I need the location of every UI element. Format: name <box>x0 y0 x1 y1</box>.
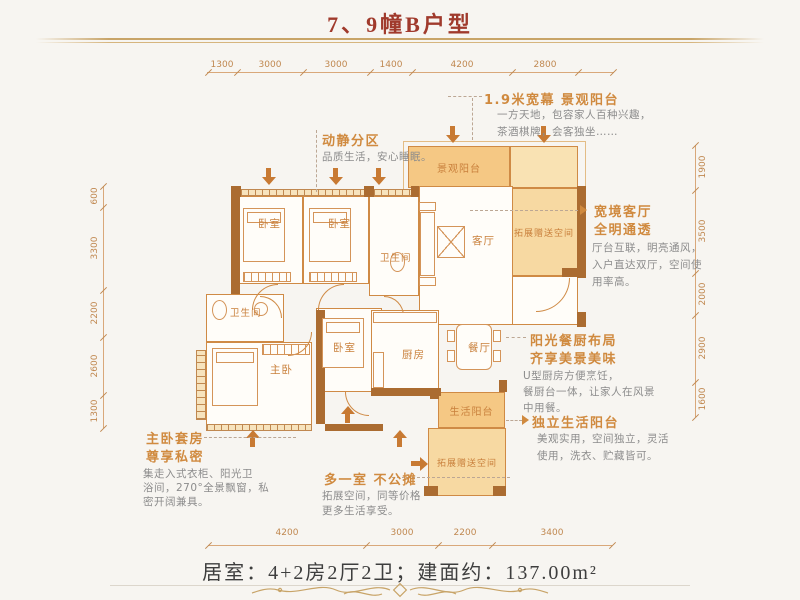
room-label-bath-a: 卫生间 <box>380 250 412 264</box>
room-label-bonus-bottom: 拓展赠送空间 <box>437 456 497 469</box>
dim-top-5: 4200 <box>442 60 482 70</box>
annotation-body: U型厨房方便烹饪， <box>523 368 619 383</box>
room-label-bedroom-a: 卧室 <box>258 216 281 231</box>
wall-corner-tl <box>231 186 241 197</box>
dim-top-1: 1300 <box>202 60 242 70</box>
wall-right <box>577 186 586 278</box>
annotation-body: 拓展空间，同等价格 <box>322 488 421 503</box>
annotation-title: 1.9米宽幕 景观阳台 <box>484 89 619 108</box>
door-arc-bedroom-b <box>318 284 344 310</box>
sofa-arm-icon <box>419 277 436 286</box>
dim-left-3: 2200 <box>90 298 100 328</box>
annotation-title: 主卧套房 <box>146 428 204 447</box>
dim-left-4: 2600 <box>90 351 100 381</box>
annotation-title: 独立生活阳台 <box>532 412 619 431</box>
chair-icon <box>493 330 501 342</box>
annotation-body: 密开阔兼具。 <box>143 494 209 509</box>
dim-right-5: 1600 <box>698 384 708 414</box>
annotation-body: 入户直达双厅，空间使 <box>592 257 702 272</box>
room-label-bedroom-c: 卧室 <box>333 340 356 355</box>
wall-bonus-bl <box>424 486 438 496</box>
room-label-view-balcony: 景观阳台 <box>437 160 481 175</box>
room-life-balcony: 生活阳台 <box>438 392 505 428</box>
room-bonus-right: 拓展赠送空间 <box>510 188 578 276</box>
dim-right-1: 1900 <box>698 152 708 182</box>
annotation-title: 动静分区 <box>322 130 380 149</box>
annotation-body: 更多生活享受。 <box>322 503 399 518</box>
bay-window-master <box>196 350 206 420</box>
room-label-bonus-right: 拓展赠送空间 <box>514 226 574 239</box>
dim-bottom-3: 2200 <box>445 528 485 538</box>
wall-corner-t3 <box>411 186 419 197</box>
dim-right-3: 2000 <box>698 279 708 309</box>
gold-rule-thin <box>36 42 764 43</box>
gold-flourish-ornament <box>250 581 550 600</box>
wall-balcony-l <box>430 390 439 399</box>
dim-top-6: 2800 <box>525 60 565 70</box>
wardrobe-icon <box>309 272 357 282</box>
wall-balcony-r <box>499 380 507 392</box>
coffee-table-icon <box>437 226 465 258</box>
kitchen-counter-icon <box>373 312 437 323</box>
room-bonus-top <box>510 146 578 188</box>
sofa-icon <box>420 212 435 276</box>
vent-arrow-icon <box>345 414 350 423</box>
annotation-body: 品质生活，安心睡眠。 <box>322 149 432 164</box>
dim-bottom-4: 3400 <box>532 528 572 538</box>
annotation-body: 厅台互联，明亮通风， <box>592 240 702 255</box>
room-label-master: 主卧 <box>270 362 293 377</box>
wall-left-upper <box>231 190 240 294</box>
chair-icon <box>493 350 501 362</box>
room-label-bath-b: 卫生间 <box>230 305 262 319</box>
room-label-kitchen: 厨房 <box>402 347 425 362</box>
annotation-title: 阳光餐厨布局 <box>530 330 617 349</box>
vent-arrow-icon <box>450 126 455 135</box>
annotation-body: 集走入式衣柜、阳光卫 <box>143 466 253 481</box>
closet-icon <box>262 344 310 355</box>
annotation-body: 使用，洗衣、贮藏皆可。 <box>537 448 658 463</box>
wall-corner-t2 <box>364 186 374 197</box>
chair-icon <box>447 330 455 342</box>
annotation-body: 用率高。 <box>592 274 636 289</box>
dim-top-4: 1400 <box>371 60 411 70</box>
annotation-body: 餐厨台一体，让家人在风景 <box>523 384 655 399</box>
dim-left-1: 600 <box>90 181 100 211</box>
vent-arrow-icon <box>397 438 402 447</box>
annotation-title: 宽境客厅 <box>594 201 652 220</box>
annotation-title: 齐享美景美味 <box>530 348 617 367</box>
vent-arrow-icon <box>250 438 255 447</box>
annotation-body: 浴间，270°全景飘窗，私 <box>143 480 269 495</box>
wall-bedroomc-bottom <box>325 424 383 431</box>
window-band-top <box>240 189 416 196</box>
bonus-arrow-icon <box>411 461 420 466</box>
sofa-arm-icon <box>419 202 436 211</box>
room-label-life-balcony: 生活阳台 <box>450 403 494 418</box>
dim-left-2: 3300 <box>90 233 100 263</box>
room-label-dining: 餐厅 <box>468 340 491 355</box>
dim-right-4: 2900 <box>698 333 708 363</box>
vent-arrow-icon <box>376 168 381 177</box>
dim-left-5: 1300 <box>90 396 100 426</box>
wall-bonus-br <box>493 486 506 496</box>
dim-top-2: 3000 <box>250 60 290 70</box>
dim-top-3: 3000 <box>316 60 356 70</box>
leader-arrow-icon <box>580 205 587 215</box>
annotation-title: 多一室 不公摊 <box>324 469 417 488</box>
vent-arrow-icon <box>333 168 338 177</box>
leader-arrow-icon <box>522 415 529 425</box>
gold-rule-thick <box>36 38 764 40</box>
annotation-title: 尊享私密 <box>146 446 204 465</box>
annotation-body: 一方天地，包容家人百种兴趣， <box>497 107 651 122</box>
wall-right-lower <box>577 312 586 327</box>
floorplan-flyer: 7、9幢B户型 1300 3000 3000 1400 4200 2800 42… <box>0 0 800 600</box>
wall-right-mid <box>562 268 586 277</box>
annotation-body: 茶酒棋牌，会客独坐…… <box>497 124 618 139</box>
vent-arrow-icon <box>266 168 271 177</box>
wardrobe-icon <box>243 272 291 282</box>
dim-bottom-1: 4200 <box>267 528 307 538</box>
chair-icon <box>447 350 455 362</box>
room-label-bedroom-b: 卧室 <box>328 216 351 231</box>
annotation-body: 美观实用，空间独立，灵活 <box>537 431 669 446</box>
room-label-living: 客厅 <box>472 233 495 248</box>
room-bath-a <box>369 196 419 296</box>
dim-bottom-2: 3000 <box>382 528 422 538</box>
annotation-title: 全明通透 <box>594 219 652 238</box>
bed-icon <box>212 348 258 406</box>
page-title: 7、9幢B户型 <box>0 7 800 39</box>
toilet-icon <box>212 300 227 320</box>
kitchen-counter-icon <box>373 352 384 388</box>
